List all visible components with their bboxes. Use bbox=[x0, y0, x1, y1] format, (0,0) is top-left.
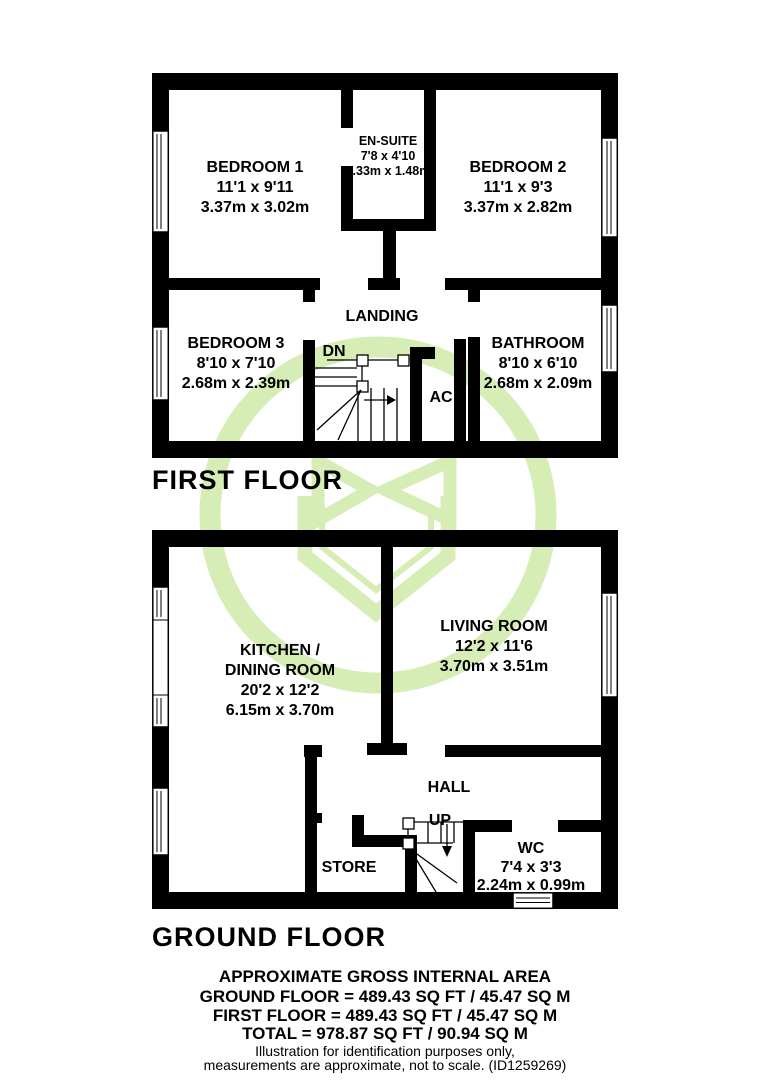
kitchen-metric: 6.15m x 3.70m bbox=[226, 702, 335, 719]
area-summary-title: APPROXIMATE GROSS INTERNAL AREA bbox=[219, 967, 551, 986]
stairs-up-label: UP bbox=[429, 812, 452, 829]
bathroom-metric: 2.68m x 2.09m bbox=[484, 375, 593, 392]
bathroom-imperial: 8'10 x 6'10 bbox=[499, 355, 578, 372]
window-living-room bbox=[602, 593, 618, 697]
kitchen-imperial: 20'2 x 12'2 bbox=[241, 682, 320, 699]
living-room-imperial: 12'2 x 11'6 bbox=[455, 638, 533, 655]
bathroom-name: BATHROOM bbox=[491, 335, 584, 352]
ground-floor-title: GROUND FLOOR bbox=[152, 922, 386, 952]
airing-cupboard-label: AC bbox=[429, 389, 453, 406]
bedroom3-metric: 2.68m x 2.39m bbox=[182, 375, 291, 392]
total-area: TOTAL = 978.87 SQ FT / 90.94 SQ M bbox=[242, 1024, 528, 1043]
area-summary: APPROXIMATE GROSS INTERNAL AREA GROUND F… bbox=[200, 967, 571, 1073]
wc-name: WC bbox=[518, 840, 545, 857]
bedroom3-imperial: 8'10 x 7'10 bbox=[197, 355, 276, 372]
window-wc bbox=[513, 893, 553, 909]
bedroom2-imperial: 11'1 x 9'3 bbox=[483, 179, 552, 196]
bedroom2-name: BEDROOM 2 bbox=[470, 159, 567, 176]
hall-label: HALL bbox=[428, 779, 471, 796]
kitchen-name-line2: DINING ROOM bbox=[225, 662, 335, 679]
wc-imperial: 7'4 x 3'3 bbox=[501, 859, 562, 876]
living-room-metric: 3.70m x 3.51m bbox=[440, 658, 549, 675]
landing-label: LANDING bbox=[346, 308, 419, 325]
ensuite-metric: 2.33m x 1.48m bbox=[346, 164, 431, 178]
disclaimer-line2: measurements are approximate, not to sca… bbox=[204, 1057, 567, 1073]
ensuite-name: EN-SUITE bbox=[359, 134, 417, 148]
stairs-dn-label: DN bbox=[322, 343, 345, 360]
ensuite-imperial: 7'8 x 4'10 bbox=[361, 149, 416, 163]
kitchen-name-line1: KITCHEN / bbox=[240, 642, 321, 659]
bedroom1-metric: 3.37m x 3.02m bbox=[201, 199, 310, 216]
bedroom1-name: BEDROOM 1 bbox=[207, 159, 304, 176]
first-floor-title: FIRST FLOOR bbox=[152, 465, 343, 495]
bedroom1-imperial: 11'1 x 9'11 bbox=[216, 179, 293, 196]
wc-metric: 2.24m x 0.99m bbox=[477, 877, 586, 894]
window-kitchen-lower bbox=[153, 788, 169, 855]
window-bedroom2 bbox=[602, 138, 618, 237]
floorplan-page: BEDROOM 1 11'1 x 9'11 3.37m x 3.02m EN-S… bbox=[0, 0, 771, 1080]
bedroom3-name: BEDROOM 3 bbox=[188, 335, 285, 352]
first-floor-area: FIRST FLOOR = 489.43 SQ FT / 45.47 SQ M bbox=[213, 1006, 557, 1025]
floorplan-drawing: BEDROOM 1 11'1 x 9'11 3.37m x 3.02m EN-S… bbox=[0, 0, 771, 1080]
window-bedroom1 bbox=[153, 131, 169, 232]
ground-floor-area: GROUND FLOOR = 489.43 SQ FT / 45.47 SQ M bbox=[200, 987, 571, 1006]
living-room-name: LIVING ROOM bbox=[440, 618, 548, 635]
window-kitchen-upper bbox=[153, 587, 169, 727]
store-label: STORE bbox=[322, 859, 377, 876]
window-bedroom3 bbox=[153, 327, 169, 400]
bedroom2-metric: 3.37m x 2.82m bbox=[464, 199, 573, 216]
window-bathroom bbox=[602, 305, 618, 372]
